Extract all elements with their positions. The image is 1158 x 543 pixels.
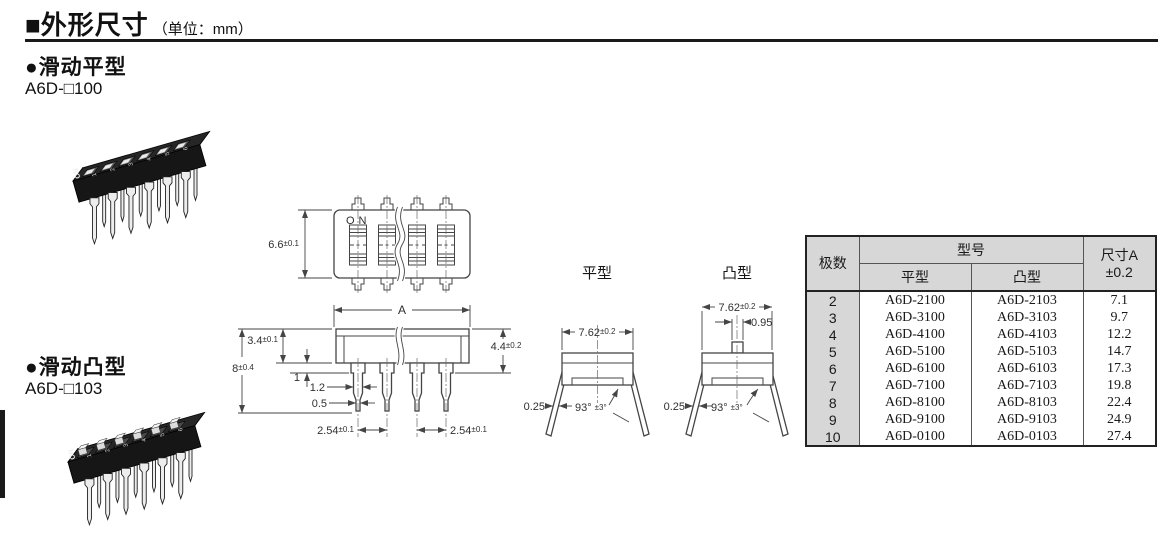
- col-header-flat: 平型: [859, 264, 971, 292]
- col-header-poles: 极数: [806, 236, 859, 291]
- dim-actuator-width: 0.95: [715, 317, 772, 340]
- table-row: 4A6D-4100A6D-410312.2: [806, 326, 1156, 343]
- cell-raised-model: A6D-0103: [971, 428, 1083, 446]
- side-view-flat: 平型 7.62±0.2 0.25 93°±3°: [524, 265, 649, 436]
- page-title: 外形尺寸: [41, 10, 149, 40]
- svg-text:6.6±0.1: 6.6±0.1: [268, 239, 299, 251]
- cell-raised-model: A6D-4103: [971, 326, 1083, 343]
- col-header-dim: 尺寸A±0.2: [1083, 236, 1156, 291]
- svg-text:7.62±0.2: 7.62±0.2: [719, 302, 756, 314]
- top-view: ON 6.6±0.1: [268, 195, 470, 293]
- square-bullet-icon: ■: [25, 10, 41, 40]
- dim-pin-tip-width: 0.5: [312, 398, 375, 410]
- product-photo-raised: ON 1 2 3 4 5 6: [36, 400, 241, 543]
- dim-lead-angle-raised: 93°±3°: [711, 389, 769, 422]
- cell-poles: 6: [806, 360, 859, 377]
- side-view-raised-label: 凸型: [722, 265, 752, 282]
- dim-top-height: 6.6±0.1: [268, 210, 332, 278]
- svg-text:2.54±0.1: 2.54±0.1: [450, 425, 487, 437]
- svg-text:0.25: 0.25: [524, 401, 545, 413]
- cell-poles: 7: [806, 377, 859, 394]
- front-view: A 3.4±0.1: [232, 303, 522, 437]
- table-row: 10A6D-0100A6D-010327.4: [806, 428, 1156, 446]
- table-row: 2A6D-2100A6D-21037.1: [806, 291, 1156, 309]
- cell-flat-model: A6D-4100: [859, 326, 971, 343]
- cell-raised-model: A6D-8103: [971, 394, 1083, 411]
- dim-pitch-left: 2.54±0.1: [317, 425, 387, 437]
- svg-text:3.4±0.1: 3.4±0.1: [247, 335, 278, 347]
- section-label-flat: ●滑动平型: [25, 51, 127, 81]
- product-photo-flat: ON 1 2 3 4 5 6: [45, 123, 240, 273]
- dim-pin-width: 1.2: [310, 382, 377, 394]
- datasheet-page: ■外形尺寸（单位：mm） ●滑动平型 A6D-□100 ●滑动凸型 A6D-□1…: [0, 0, 1158, 543]
- cell-raised-model: A6D-2103: [971, 291, 1083, 309]
- dim-width-a: A: [334, 303, 470, 327]
- cell-poles: 9: [806, 411, 859, 428]
- dim-lead-angle-flat: 93°±3°: [575, 389, 629, 422]
- dim-lead-thickness-raised: 0.25: [664, 401, 712, 413]
- page-edge-tab: [0, 410, 5, 498]
- table-row: 7A6D-7100A6D-710319.8: [806, 377, 1156, 394]
- cell-dim-a: 9.7: [1083, 309, 1156, 326]
- raised-actuator: [732, 342, 743, 353]
- svg-text:93°±3°: 93°±3°: [575, 402, 607, 414]
- section-label-raised: ●滑动凸型: [25, 351, 127, 381]
- cell-raised-model: A6D-9103: [971, 411, 1083, 428]
- cell-dim-a: 27.4: [1083, 428, 1156, 446]
- col-header-raised: 凸型: [971, 264, 1083, 292]
- cell-flat-model: A6D-5100: [859, 343, 971, 360]
- dip-switch-raised: ON 1 2 3 4 5 6: [64, 410, 226, 527]
- cell-flat-model: A6D-3100: [859, 309, 971, 326]
- page-header: ■外形尺寸（单位：mm）: [25, 5, 253, 42]
- dim-pitch-right: 2.54±0.1: [417, 425, 487, 437]
- table-row: 9A6D-9100A6D-910324.9: [806, 411, 1156, 428]
- cell-poles: 4: [806, 326, 859, 343]
- side-view-flat-label: 平型: [582, 265, 612, 282]
- cell-poles: 8: [806, 394, 859, 411]
- side-views-drawing: 平型 7.62±0.2 0.25 93°±3°: [515, 255, 805, 455]
- svg-text:1.2: 1.2: [310, 382, 325, 394]
- svg-text:0.5: 0.5: [312, 398, 327, 410]
- cell-raised-model: A6D-5103: [971, 343, 1083, 360]
- cell-poles: 5: [806, 343, 859, 360]
- model-code-flat: A6D-□100: [25, 79, 102, 99]
- col-header-model: 型号: [859, 236, 1083, 264]
- svg-text:8±0.4: 8±0.4: [232, 363, 254, 375]
- cell-dim-a: 17.3: [1083, 360, 1156, 377]
- dim-lead-thickness-flat: 0.25: [524, 401, 572, 413]
- model-table: 极数 型号 尺寸A±0.2 平型 凸型 2A6D-2100A6D-21037.1…: [805, 235, 1157, 447]
- cell-dim-a: 24.9: [1083, 411, 1156, 428]
- cell-dim-a: 14.7: [1083, 343, 1156, 360]
- cell-raised-model: A6D-6103: [971, 360, 1083, 377]
- cell-poles: 2: [806, 291, 859, 309]
- cell-raised-model: A6D-7103: [971, 377, 1083, 394]
- cell-poles: 3: [806, 309, 859, 326]
- dim-body-height: 3.4±0.1: [238, 329, 332, 363]
- header-rule: [25, 39, 1158, 42]
- model-code-raised: A6D-□103: [25, 379, 102, 399]
- dim-header-line1: 尺寸A: [1101, 247, 1138, 263]
- cell-flat-model: A6D-2100: [859, 291, 971, 309]
- top-view-on-label: ON: [346, 215, 371, 227]
- cell-flat-model: A6D-7100: [859, 377, 971, 394]
- table-row: 3A6D-3100A6D-31039.7: [806, 309, 1156, 326]
- table-row: 8A6D-8100A6D-810322.4: [806, 394, 1156, 411]
- svg-text:0.95: 0.95: [751, 317, 772, 329]
- svg-text:2.54±0.1: 2.54±0.1: [317, 425, 354, 437]
- dim-header-line2: ±0.2: [1106, 264, 1133, 280]
- cell-dim-a: 19.8: [1083, 377, 1156, 394]
- cell-dim-a: 12.2: [1083, 326, 1156, 343]
- cell-raised-model: A6D-3103: [971, 309, 1083, 326]
- photo-on-label: ON: [73, 167, 83, 179]
- svg-text:A: A: [398, 303, 406, 317]
- cell-flat-model: A6D-8100: [859, 394, 971, 411]
- table-row: 6A6D-6100A6D-610317.3: [806, 360, 1156, 377]
- cell-flat-model: A6D-6100: [859, 360, 971, 377]
- cell-dim-a: 22.4: [1083, 394, 1156, 411]
- dip-switch-flat: ON 1 2 3 4 5 6: [69, 130, 231, 246]
- cell-dim-a: 7.1: [1083, 291, 1156, 309]
- side-view-raised: 凸型 7.62±0.2 0.95 0.25: [664, 265, 788, 436]
- cell-flat-model: A6D-0100: [859, 428, 971, 446]
- photo-on-label: ON: [68, 448, 78, 460]
- unit-note: （单位：mm）: [153, 21, 253, 38]
- dimension-drawing-main: ON 6.6±0.1 A: [230, 145, 550, 455]
- table-row: 5A6D-5100A6D-510314.7: [806, 343, 1156, 360]
- svg-text:93°±3°: 93°±3°: [711, 402, 743, 414]
- cell-flat-model: A6D-9100: [859, 411, 971, 428]
- svg-text:0.25: 0.25: [664, 401, 685, 413]
- svg-text:1: 1: [294, 372, 300, 384]
- cell-poles: 10: [806, 428, 859, 446]
